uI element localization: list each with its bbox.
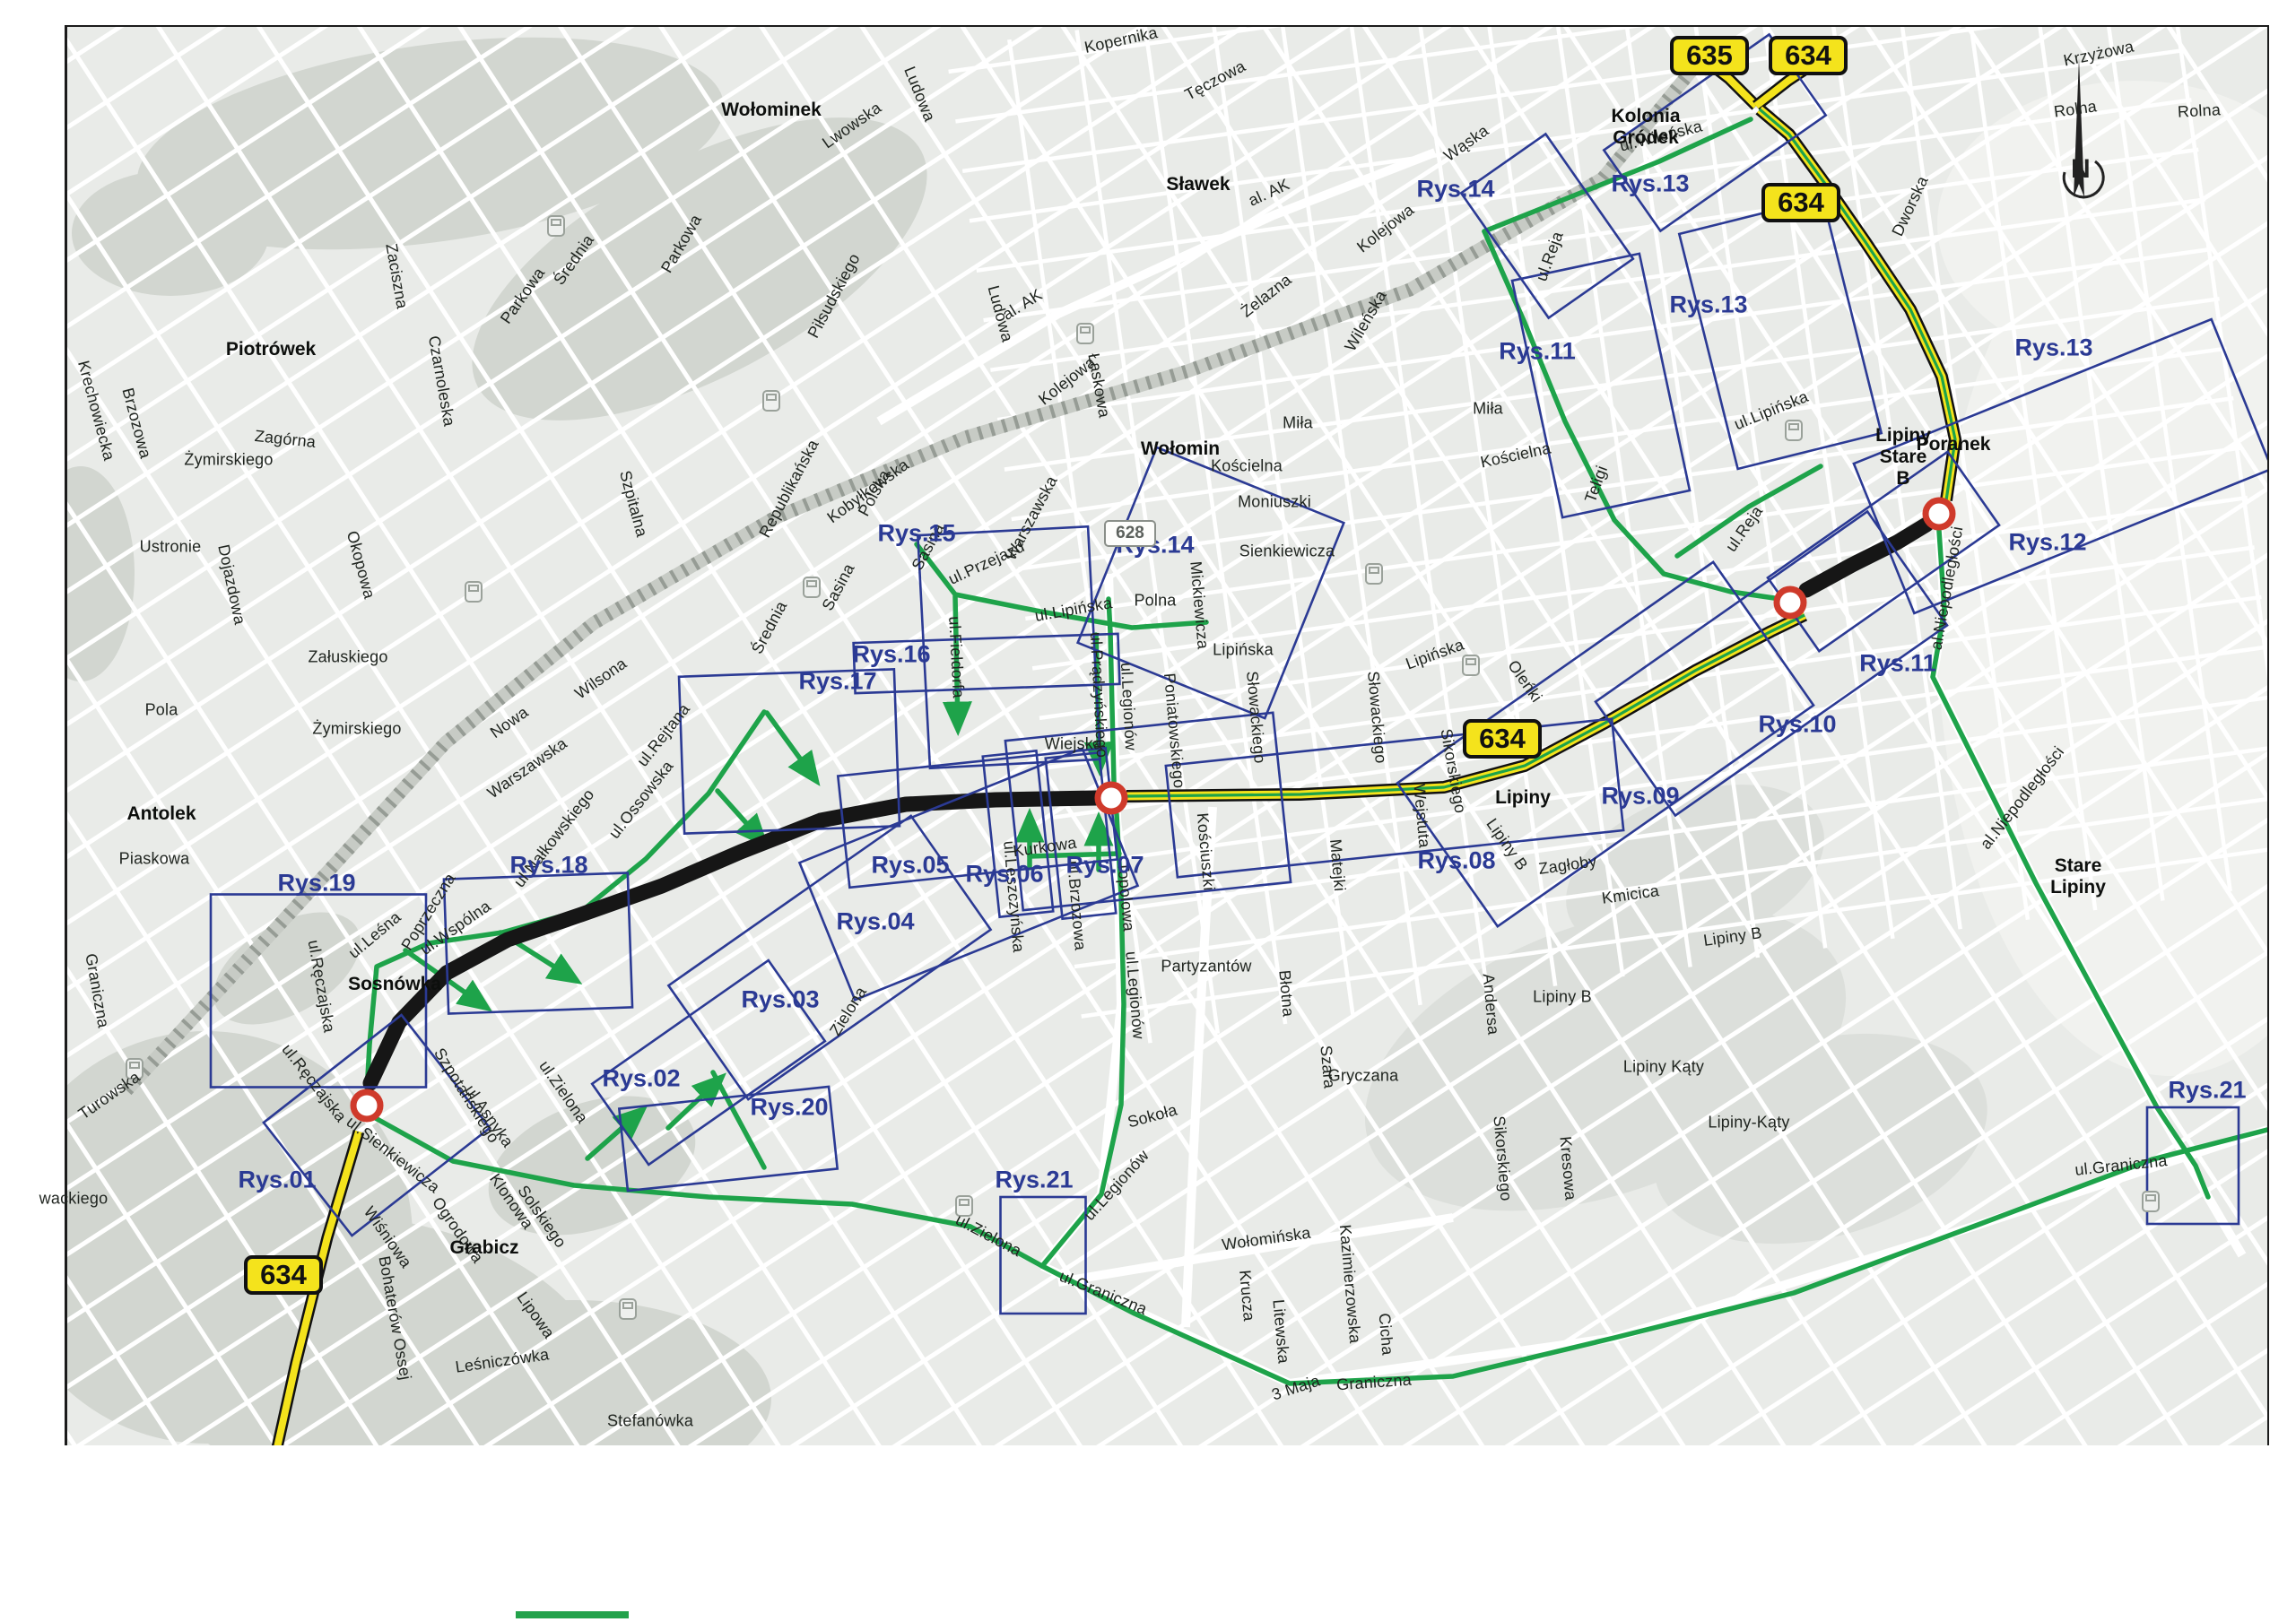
closure-marker [1777, 589, 1804, 616]
bus-stop-icon [763, 391, 779, 411]
closure-marker [353, 1092, 380, 1119]
title-bar: LEGENDA: A-6aistn. Przykład znaku istnie… [0, 1445, 2296, 1622]
map-layers: N [0, 0, 2296, 1445]
closure-marker [1926, 500, 1952, 527]
detour-route [1030, 854, 1119, 856]
bus-stop-icon [126, 1059, 143, 1079]
green-edge-artifact [516, 1611, 629, 1618]
bus-stop-icon [1077, 324, 1093, 343]
map-area: N LwowskaLudowaLudowaKopernikaTęczowaal.… [0, 0, 2296, 1445]
bus-stop-icon [548, 216, 564, 236]
bus-stop-icon [1786, 421, 1802, 440]
bus-stop-icon [1463, 655, 1479, 675]
terrain-patch [72, 170, 269, 296]
bus-stop-icon [2143, 1192, 2159, 1211]
bus-stop-icon [1366, 564, 1382, 584]
bus-stop-icon [956, 1196, 972, 1216]
closure-marker [1098, 785, 1125, 811]
bus-stop-icon [620, 1299, 636, 1319]
detour-route [955, 596, 958, 726]
bus-stop-icon [804, 577, 820, 597]
north-label: N [2071, 154, 2091, 184]
map-canvas: N [0, 0, 2296, 1445]
bus-stop-icon [465, 582, 482, 602]
scanned-map-sheet: N LwowskaLudowaLudowaKopernikaTęczowaal.… [0, 0, 2296, 1622]
